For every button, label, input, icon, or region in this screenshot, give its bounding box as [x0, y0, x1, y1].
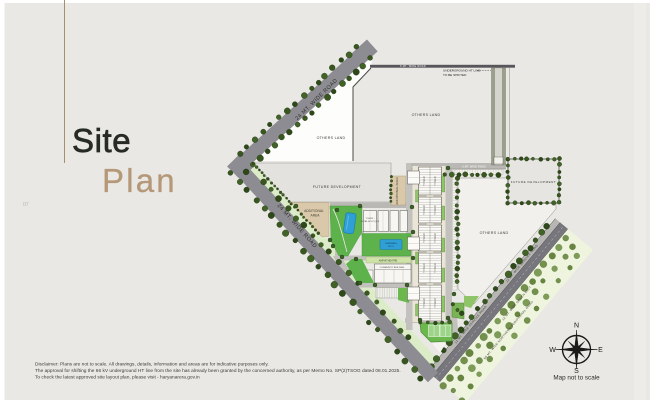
svg-text:OTHERS LAND: OTHERS LAND: [412, 113, 441, 117]
svg-text:Plan: Plan: [102, 162, 177, 199]
svg-text:RETAIL/BOUTIQUE: RETAIL/BOUTIQUE: [361, 220, 380, 223]
svg-text:E: E: [598, 347, 603, 354]
svg-text:W: W: [549, 347, 556, 354]
svg-text:TOWER: TOWER: [435, 176, 437, 186]
svg-text:COMMUNITY BUILDING: COMMUNITY BUILDING: [380, 267, 405, 269]
svg-text:TOWER: TOWER: [435, 298, 437, 308]
svg-text:POOL: POOL: [388, 246, 395, 248]
svg-text:TOWER: TOWER: [424, 263, 426, 273]
svg-text:SWIMMING: SWIMMING: [385, 243, 397, 245]
svg-text:TOWER -: TOWER -: [366, 218, 375, 220]
svg-text:07: 07: [23, 202, 29, 208]
svg-text:N: N: [574, 323, 579, 330]
svg-text:TOWER: TOWER: [435, 233, 437, 243]
svg-text:Map not to scale: Map not to scale: [553, 375, 600, 382]
svg-text:ADDITIONAL AREA: ADDITIONAL AREA: [395, 176, 399, 205]
svg-text:TOWER: TOWER: [424, 205, 426, 215]
svg-text:TOWER: TOWER: [435, 263, 437, 273]
svg-text:AMPHITHEATRE: AMPHITHEATRE: [379, 260, 398, 263]
svg-text:The approval for shifting the: The approval for shifting the 66 kV unde…: [35, 368, 401, 374]
svg-text:6 MT. WIDE ROAD: 6 MT. WIDE ROAD: [462, 166, 485, 169]
svg-text:TOWER: TOWER: [424, 298, 426, 308]
svg-text:UNDERGROUND HT LINE: UNDERGROUND HT LINE: [443, 69, 480, 73]
svg-text:TO BE SHIFTED: TO BE SHIFTED: [443, 73, 467, 77]
svg-text:TOWER: TOWER: [424, 233, 426, 243]
svg-text:FUTURE DEVELOPMENT: FUTURE DEVELOPMENT: [511, 180, 557, 184]
svg-text:OTHERS LAND: OTHERS LAND: [480, 231, 509, 235]
svg-text:To check the latest approved s: To check the latest approved site layout…: [35, 375, 200, 381]
svg-text:TOWER: TOWER: [424, 176, 426, 186]
svg-text:OTHERS LAND: OTHERS LAND: [317, 136, 346, 140]
svg-text:TOWER: TOWER: [435, 205, 437, 215]
svg-text:Disclaimer: Plans are not to s: Disclaimer: Plans are not to scale. All …: [35, 362, 269, 368]
svg-text:Site: Site: [72, 122, 131, 159]
svg-text:FUTURE DEVELOPMENT: FUTURE DEVELOPMENT: [313, 185, 362, 189]
svg-text:ADDITIONAL: ADDITIONAL: [304, 209, 324, 213]
svg-text:6 MT. WIDE ROAD: 6 MT. WIDE ROAD: [400, 65, 426, 68]
svg-text:AREA: AREA: [311, 214, 321, 218]
